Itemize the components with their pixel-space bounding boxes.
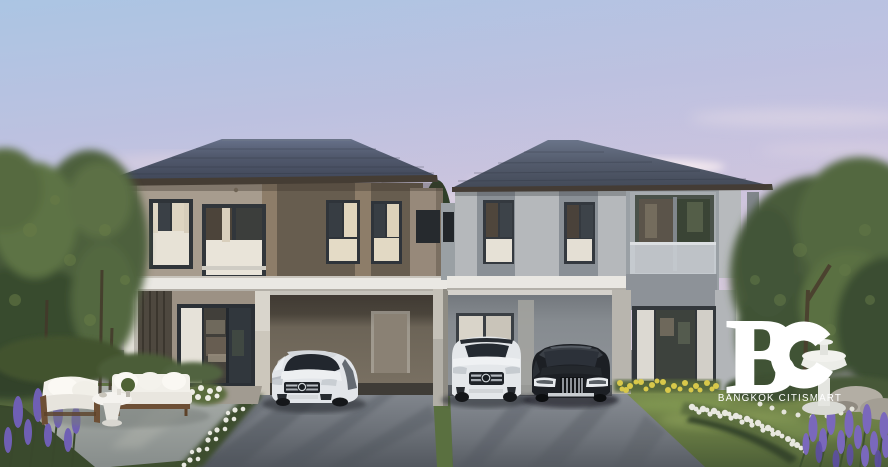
svg-text:BANGKOK CITISMART: BANGKOK CITISMART [718, 393, 842, 404]
